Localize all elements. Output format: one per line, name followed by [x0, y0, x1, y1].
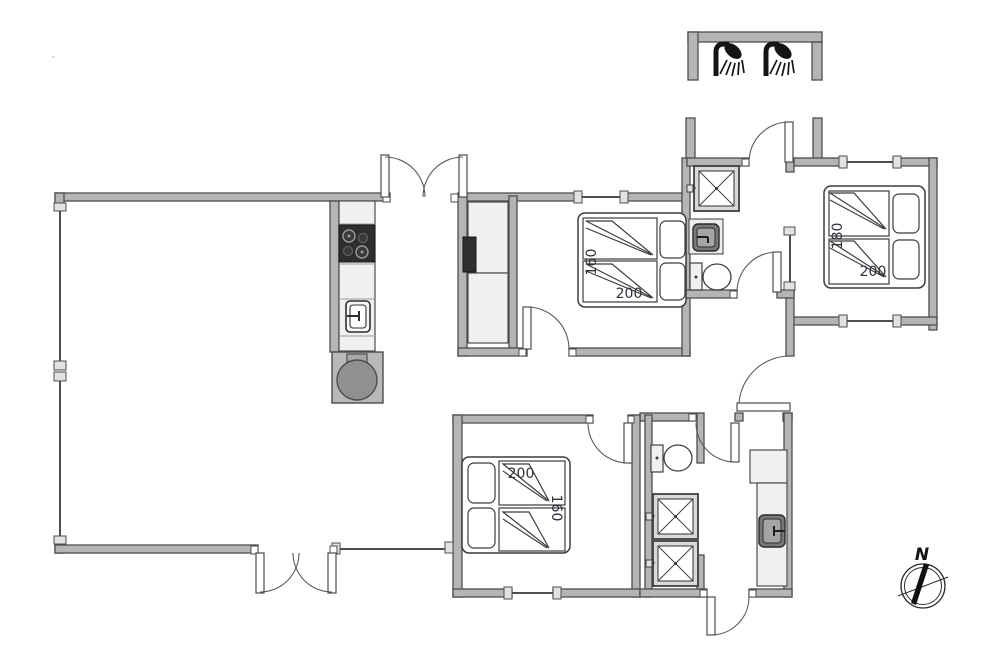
wood-stove-icon [332, 352, 383, 403]
middle-bedroom-door [523, 307, 569, 349]
bottom-bedroom-door [588, 423, 632, 463]
entrance-double-door [381, 155, 467, 197]
bed-bottom: 200 160 [462, 457, 570, 553]
wardrobe-dark-panel [463, 237, 476, 272]
bed-length-label: 200 [508, 466, 535, 482]
bed-width-label: 160 [584, 249, 600, 276]
pillow [893, 240, 919, 279]
bed-width-label: 180 [830, 223, 846, 250]
utility-sink-icon [759, 515, 785, 547]
shower-cabin-icon [646, 494, 698, 539]
kitchen [332, 201, 383, 403]
utility-exterior-door [707, 597, 749, 635]
kitchen-sink-icon [346, 301, 370, 332]
pillow [660, 221, 685, 258]
bathroom-1 [687, 166, 739, 290]
bed-length-label: 200 [860, 264, 887, 280]
stray-mark [52, 56, 55, 58]
pillow [468, 508, 495, 548]
utility-room [750, 450, 787, 586]
utility-counter [750, 450, 787, 483]
bathroom-2 [646, 445, 698, 586]
bed-middle: 160 200 [578, 213, 686, 307]
shower-cabin-icon [687, 166, 739, 211]
cooktop-icon [339, 225, 375, 262]
toilet-icon [690, 263, 731, 290]
hallway-east-door [737, 356, 790, 411]
floorplan-drawing: 180 200 160 200 200 160 [0, 0, 1000, 667]
pillow [893, 194, 919, 233]
terrace-double-door [256, 553, 336, 593]
compass-needle [911, 563, 929, 605]
bathroom-door [737, 252, 781, 292]
wardrobe [463, 202, 508, 343]
bed-length-label: 200 [616, 286, 643, 302]
bed-right: 180 200 [824, 186, 925, 288]
floorplan-page: 180 200 160 200 200 160 [0, 0, 1000, 667]
compass-north-label: N [915, 545, 929, 565]
outdoor-shower-icon [766, 40, 795, 76]
pillow [468, 463, 495, 503]
back-door [749, 122, 793, 162]
pillow [660, 263, 685, 300]
compass-rose: N [898, 545, 948, 608]
outdoor-shower-icon [716, 40, 745, 76]
washbasin-icon [689, 219, 723, 254]
toilet-icon [651, 445, 692, 472]
shower-cabin-icon [646, 541, 698, 586]
bed-width-label: 160 [548, 495, 564, 522]
